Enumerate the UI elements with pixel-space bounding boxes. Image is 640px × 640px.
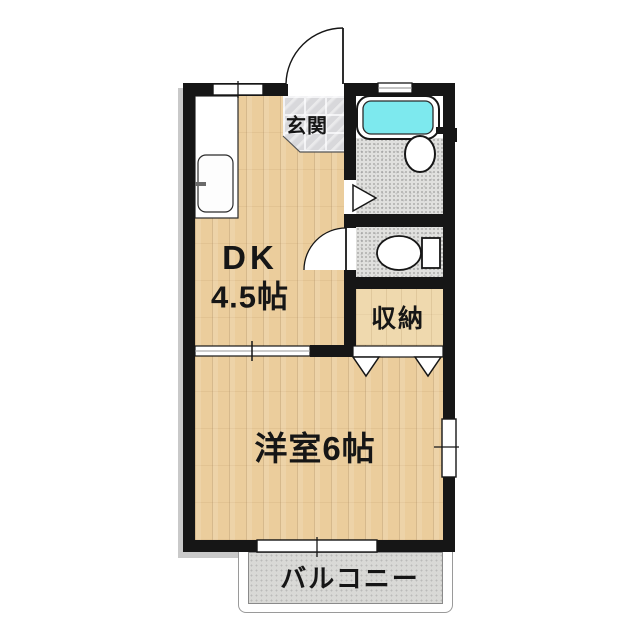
window-right-wall xyxy=(442,419,456,477)
closet-label: 収納 xyxy=(371,299,425,335)
wall-toilet-closet xyxy=(344,277,455,289)
wall-right xyxy=(443,83,455,552)
closet-opening xyxy=(353,346,443,357)
toilet-bowl xyxy=(377,236,421,270)
western-room-label: 洋室6帖 xyxy=(254,422,375,470)
wall-dk-room xyxy=(310,345,356,357)
toilet-door-swing-area xyxy=(304,228,346,270)
bath-folding-door xyxy=(353,185,376,211)
wall-left xyxy=(183,83,195,552)
closet-bifold-door-right xyxy=(415,357,441,376)
balcony-label: バルコニー xyxy=(280,559,419,596)
closet-bifold-door-left xyxy=(353,357,379,376)
wall-bath-toilet xyxy=(344,214,455,227)
genkan-label: 玄関 xyxy=(286,110,328,139)
washbasin xyxy=(405,136,435,172)
entrance-opening xyxy=(288,83,344,96)
toilet-tank xyxy=(422,238,440,268)
plan-linework xyxy=(0,0,640,640)
floor-plan: 玄関 DK 4.5帖 収納 洋室6帖 バルコニー xyxy=(0,0,640,640)
dk-size-label: 4.5帖 xyxy=(211,272,289,317)
bathtub-water xyxy=(363,101,433,134)
